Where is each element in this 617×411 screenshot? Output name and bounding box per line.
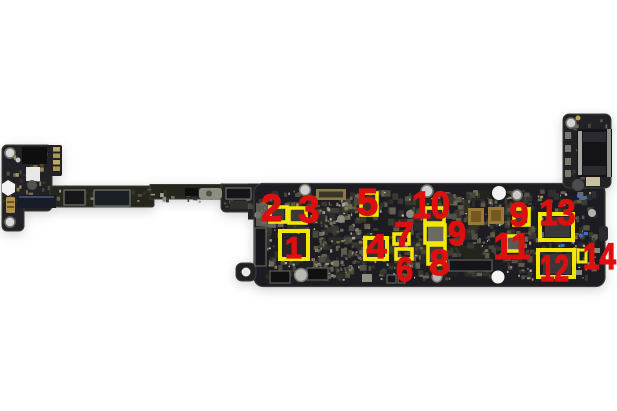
svg-text:9: 9 (448, 215, 466, 253)
svg-text:11: 11 (494, 226, 531, 267)
svg-text:5: 5 (357, 182, 378, 224)
svg-text:1: 1 (285, 232, 302, 265)
svg-text:13: 13 (540, 192, 576, 233)
svg-text:14: 14 (583, 236, 616, 277)
svg-text:7: 7 (395, 216, 414, 254)
svg-text:8: 8 (429, 242, 449, 283)
svg-text:6: 6 (396, 251, 413, 289)
svg-text:2: 2 (261, 188, 282, 230)
svg-text:10: 10 (412, 185, 450, 227)
svg-text:3: 3 (298, 189, 319, 231)
svg-text:4: 4 (367, 228, 387, 266)
svg-text:12: 12 (540, 248, 569, 289)
